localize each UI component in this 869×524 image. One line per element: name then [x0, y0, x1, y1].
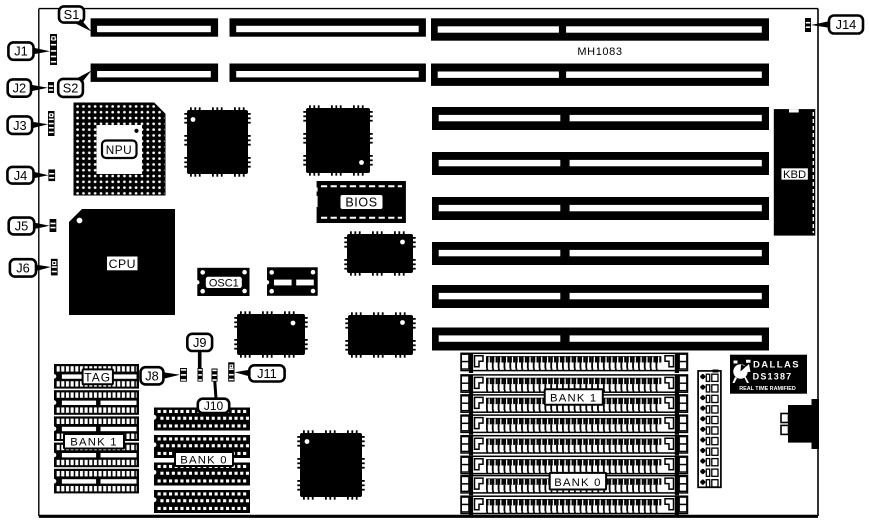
svg-text:J2: J2 — [13, 81, 27, 96]
svg-text:BANK 0: BANK 0 — [180, 454, 227, 466]
svg-text:CPU: CPU — [109, 257, 136, 271]
svg-text:J5: J5 — [15, 219, 29, 234]
svg-text:OSC1: OSC1 — [209, 278, 239, 290]
svg-text:BANK 1: BANK 1 — [70, 437, 117, 449]
svg-text:J1: J1 — [14, 44, 28, 59]
svg-text:MH1083: MH1083 — [577, 46, 622, 58]
svg-text:KBD: KBD — [783, 169, 806, 181]
svg-text:J8: J8 — [145, 368, 159, 383]
svg-text:S2: S2 — [63, 81, 79, 96]
svg-text:DS1387: DS1387 — [753, 372, 793, 382]
svg-text:J9: J9 — [193, 335, 207, 350]
svg-text:S1: S1 — [64, 7, 80, 22]
svg-text:BIOS: BIOS — [345, 196, 377, 210]
svg-text:TAG: TAG — [84, 371, 111, 385]
svg-text:J14: J14 — [836, 17, 857, 32]
svg-text:NPU: NPU — [106, 143, 132, 157]
svg-text:DALLAS: DALLAS — [753, 360, 800, 371]
svg-text:J6: J6 — [16, 261, 30, 276]
svg-text:BANK 0: BANK 0 — [554, 477, 601, 489]
svg-text:REAL TIME RAMIFIED: REAL TIME RAMIFIED — [739, 386, 796, 392]
svg-text:BANK 1: BANK 1 — [550, 393, 597, 405]
svg-text:J11: J11 — [257, 366, 277, 381]
svg-text:J10: J10 — [204, 399, 224, 413]
svg-text:J4: J4 — [14, 168, 28, 183]
svg-text:J3: J3 — [13, 118, 27, 133]
